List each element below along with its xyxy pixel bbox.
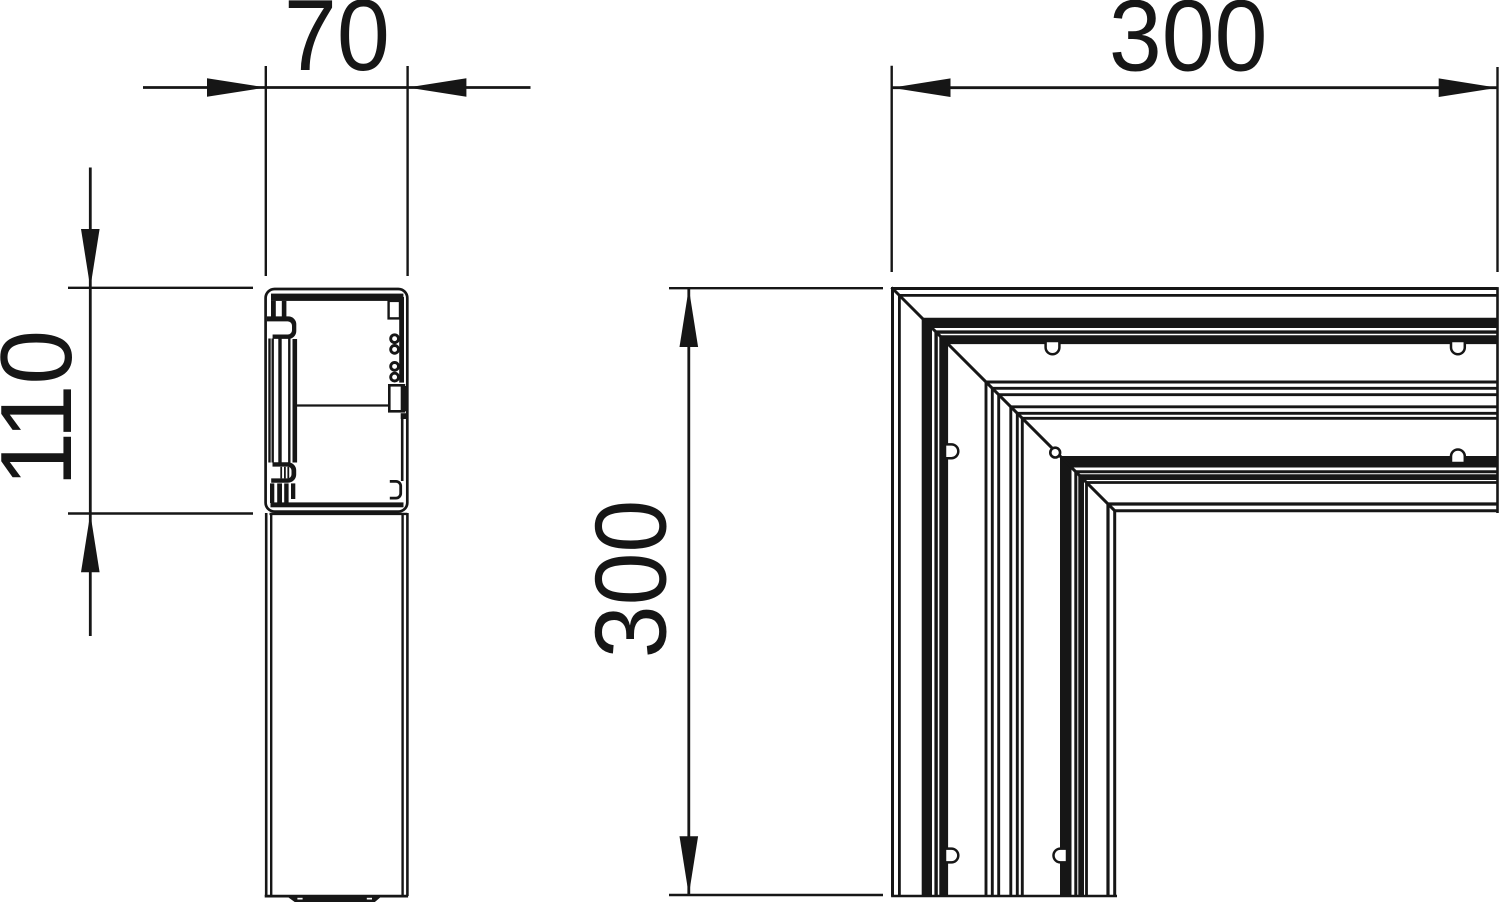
svg-text:110: 110 — [0, 330, 93, 487]
svg-text:70: 70 — [284, 0, 390, 92]
svg-text:300: 300 — [576, 500, 688, 659]
svg-text:300: 300 — [1109, 0, 1268, 92]
